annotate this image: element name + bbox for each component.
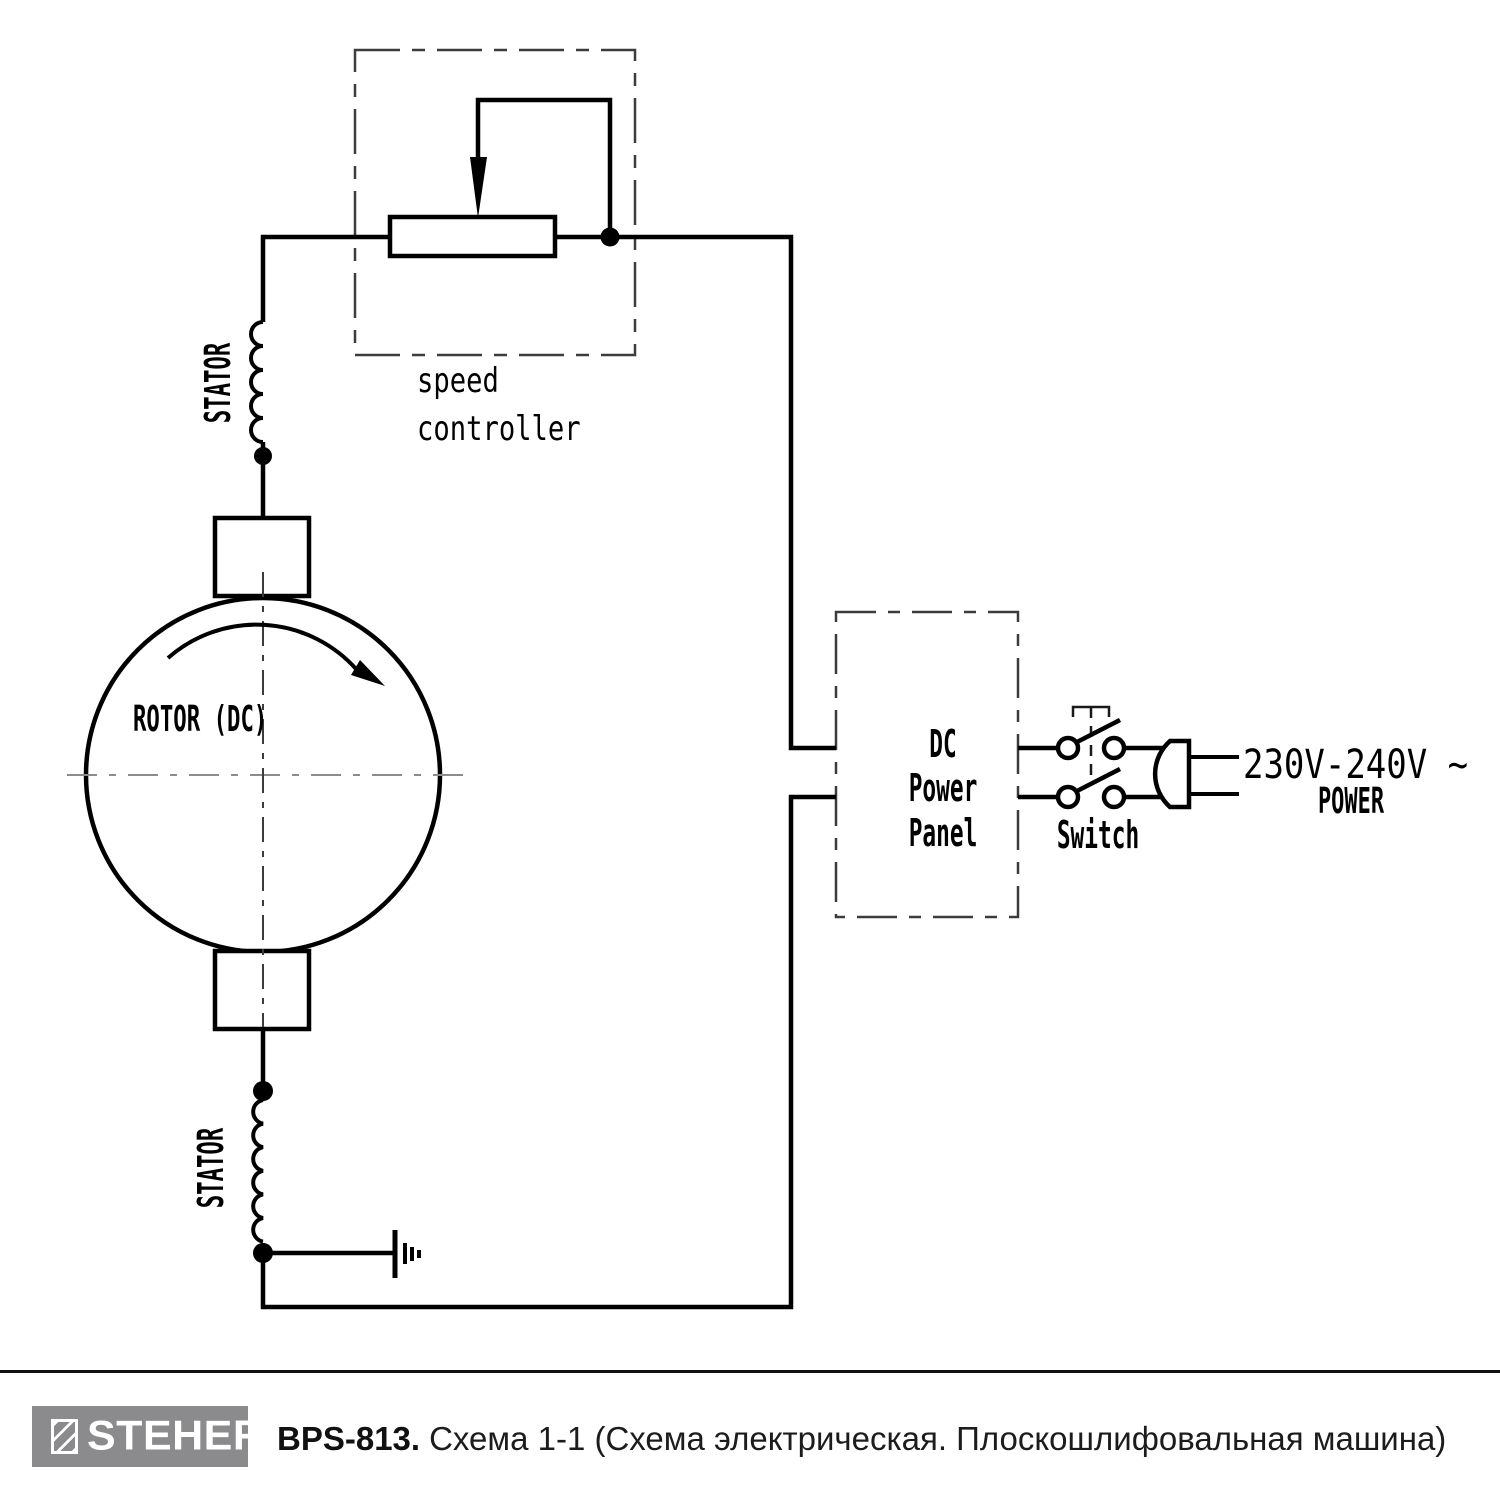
wire-pot-to-panel: [555, 237, 836, 748]
switch-contact: [1104, 738, 1124, 758]
switch-contact: [1058, 738, 1078, 758]
dc-power-panel-box: [836, 612, 1018, 917]
stator-coil-top: [251, 322, 263, 442]
dc-panel-label-line3: Panel: [909, 812, 978, 856]
plug-symbol: [1155, 741, 1239, 807]
wiper-arrow-icon: [470, 157, 487, 218]
stator-top-label: STATOR: [198, 342, 240, 423]
junction-dot: [253, 1243, 273, 1263]
junction-dot: [253, 1081, 273, 1101]
caption-text: Схема 1-1 (Схема электрическая. Плоскошл…: [429, 1420, 1446, 1457]
ground-symbol-icon: [395, 1230, 419, 1278]
steher-logo-icon: [51, 1419, 78, 1454]
speed-controller-label-line1: speed: [417, 361, 499, 401]
footer-caption: BPS-813.Схема 1-1 (Схема электрическая. …: [277, 1420, 1446, 1458]
rotor-label: ROTOR (DC): [133, 699, 267, 741]
speed-controller-box: [355, 50, 635, 355]
steher-logo: STEHER: [32, 1406, 248, 1467]
potentiometer-body: [390, 217, 555, 256]
switch-label: Switch: [1057, 814, 1139, 858]
power-label: POWER: [1318, 780, 1384, 822]
schematic-page: speed controller STATOR STATOR ROTOR (DC…: [0, 0, 1500, 1500]
plug-body: [1155, 741, 1189, 807]
switch-symbol: [1058, 707, 1124, 807]
stator-bottom-label: STATOR: [191, 1127, 233, 1208]
steher-logo-text: STEHER: [87, 1416, 264, 1457]
stator-coil-bottom: [253, 1100, 263, 1242]
dc-panel-label-line2: Power: [909, 767, 978, 811]
switch-contact: [1104, 787, 1124, 807]
model-number: BPS-813.: [277, 1420, 420, 1457]
dc-panel-label-line1: DC: [929, 723, 956, 767]
wire-pot-to-stator-top: [263, 237, 390, 322]
junction-dot: [254, 447, 272, 465]
speed-controller-label-line2: controller: [417, 409, 581, 449]
junction-dot: [601, 228, 620, 247]
circuit-schematic: speed controller STATOR STATOR ROTOR (DC…: [0, 0, 1500, 1370]
switch-contact: [1058, 787, 1078, 807]
footer-divider: [0, 1370, 1500, 1373]
